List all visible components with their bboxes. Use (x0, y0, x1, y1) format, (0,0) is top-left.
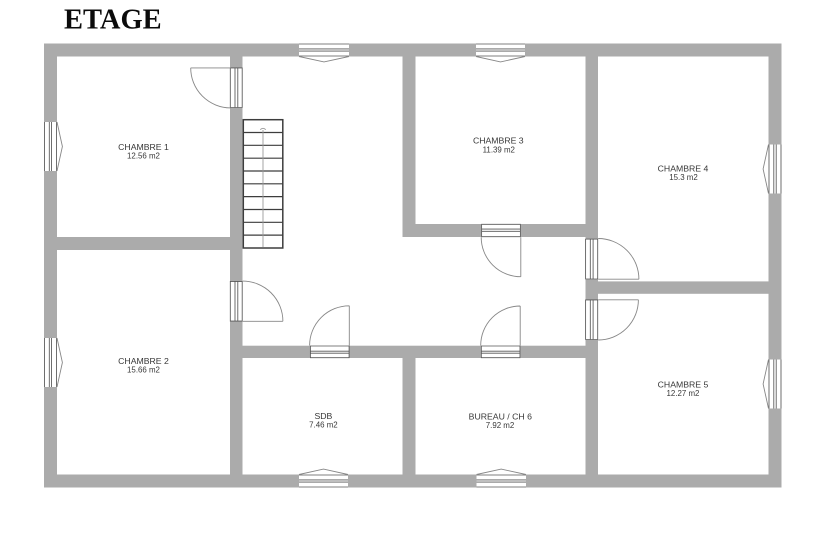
svg-text:12.56 m2: 12.56 m2 (127, 151, 160, 160)
svg-text:CHAMBRE 4: CHAMBRE 4 (658, 163, 709, 173)
svg-text:CHAMBRE 1: CHAMBRE 1 (118, 142, 169, 152)
svg-text:ETAGE: ETAGE (64, 4, 162, 35)
svg-text:11.39 m2: 11.39 m2 (483, 145, 515, 154)
svg-text:15.66 m2: 15.66 m2 (127, 365, 160, 374)
svg-text:CHAMBRE 3: CHAMBRE 3 (473, 136, 524, 146)
svg-text:12.27 m2: 12.27 m2 (667, 389, 700, 398)
svg-text:7.46 m2: 7.46 m2 (309, 421, 338, 430)
svg-text:7.92 m2: 7.92 m2 (486, 421, 515, 430)
svg-text:CHAMBRE 5: CHAMBRE 5 (658, 379, 709, 389)
svg-text:SDB: SDB (314, 411, 332, 421)
svg-text:15.3 m2: 15.3 m2 (669, 173, 698, 182)
